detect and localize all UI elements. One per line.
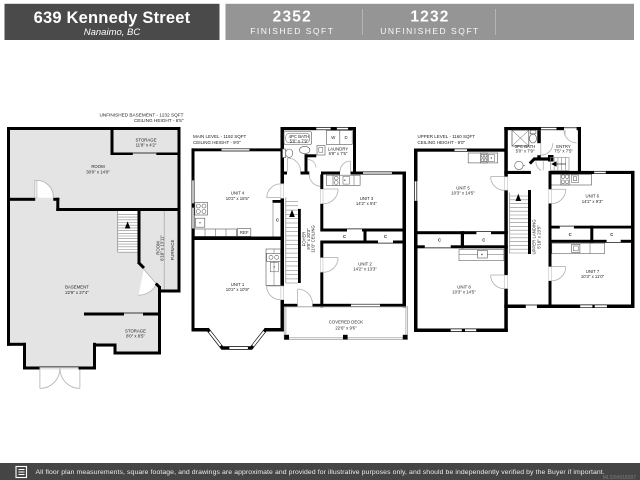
svg-text:10'3" x 11'0": 10'3" x 11'0" [581,274,605,279]
svg-text:Nanaimo, BC: Nanaimo, BC [84,27,141,38]
svg-text:C: C [569,232,572,237]
svg-text:14'2" x 9'3": 14'2" x 9'3" [582,199,604,204]
svg-text:CEILING HEIGHT - 9'0": CEILING HEIGHT - 9'0" [193,140,241,145]
svg-text:10'3" x 14'5": 10'3" x 14'5" [452,290,476,295]
svg-text:7'5" x 7'5": 7'5" x 7'5" [554,149,573,154]
svg-text:22'9" x 27'4": 22'9" x 27'4" [65,290,89,295]
svg-text:UNFINISHED SQFT: UNFINISHED SQFT [380,26,479,36]
svg-text:All floor plan measurements, s: All floor plan measurements, square foot… [36,469,605,476]
svg-text:C: C [384,234,387,239]
svg-text:BASEMENT: BASEMENT [65,285,89,290]
svg-text:22'6" x 9'6": 22'6" x 9'6" [335,325,357,330]
svg-text:MLS®#918287: MLS®#918287 [603,474,637,480]
svg-text:UNIT 4: UNIT 4 [231,191,245,196]
svg-text:5'10" x 23'5": 5'10" x 23'5" [537,225,542,249]
svg-text:30'0" x 14'0": 30'0" x 14'0" [86,169,110,174]
svg-text:10'2" x 10'9": 10'2" x 10'9" [226,287,250,292]
svg-text:D: D [344,135,347,140]
svg-text:5'0" x 7'9": 5'0" x 7'9" [516,149,535,154]
svg-text:6'8" x 7'5": 6'8" x 7'5" [329,151,348,156]
svg-text:C: C [610,232,613,237]
svg-text:14'2" x 9'4": 14'2" x 9'4" [356,201,378,206]
svg-text:C: C [438,238,441,243]
svg-text:8'0" x 8'5": 8'0" x 8'5" [126,334,145,339]
svg-text:FURNACE: FURNACE [170,239,175,260]
svg-text:C: C [343,234,346,239]
svg-text:FINISHED SQFT: FINISHED SQFT [250,26,334,36]
svg-text:639 Kennedy Street: 639 Kennedy Street [34,9,191,27]
svg-text:10'3" x 14'5": 10'3" x 14'5" [451,191,475,196]
svg-text:MAIN LEVEL - 1192 SQFT: MAIN LEVEL - 1192 SQFT [193,134,247,139]
svg-text:1232: 1232 [410,9,449,26]
svg-text:11'0" CEILING: 11'0" CEILING [311,225,316,253]
svg-text:CEILING HEIGHT - 6'5": CEILING HEIGHT - 6'5" [134,118,184,123]
svg-text:UPPER LEVEL - 1160 SQFT: UPPER LEVEL - 1160 SQFT [418,134,476,139]
svg-text:10'2" x 15'5": 10'2" x 15'5" [226,196,250,201]
svg-text:14'2" x 13'3": 14'2" x 13'3" [353,267,377,272]
svg-text:6'10" x 13'11": 6'10" x 13'11" [159,235,164,261]
svg-text:C: C [276,218,279,223]
svg-text:UNFINISHED BASEMENT - 1232 SQF: UNFINISHED BASEMENT - 1232 SQFT [99,113,183,118]
svg-text:11'8" x 4'2": 11'8" x 4'2" [136,142,157,147]
svg-text:C: C [482,238,485,243]
svg-text:CEILING HEIGHT - 9'0": CEILING HEIGHT - 9'0" [418,140,466,145]
svg-text:5'0" x 7'9": 5'0" x 7'9" [290,139,309,144]
svg-text:ROOM: ROOM [91,164,105,169]
svg-text:COVERED DECK: COVERED DECK [329,320,364,325]
svg-text:2352: 2352 [273,9,312,26]
svg-text:REF: REF [240,230,249,235]
